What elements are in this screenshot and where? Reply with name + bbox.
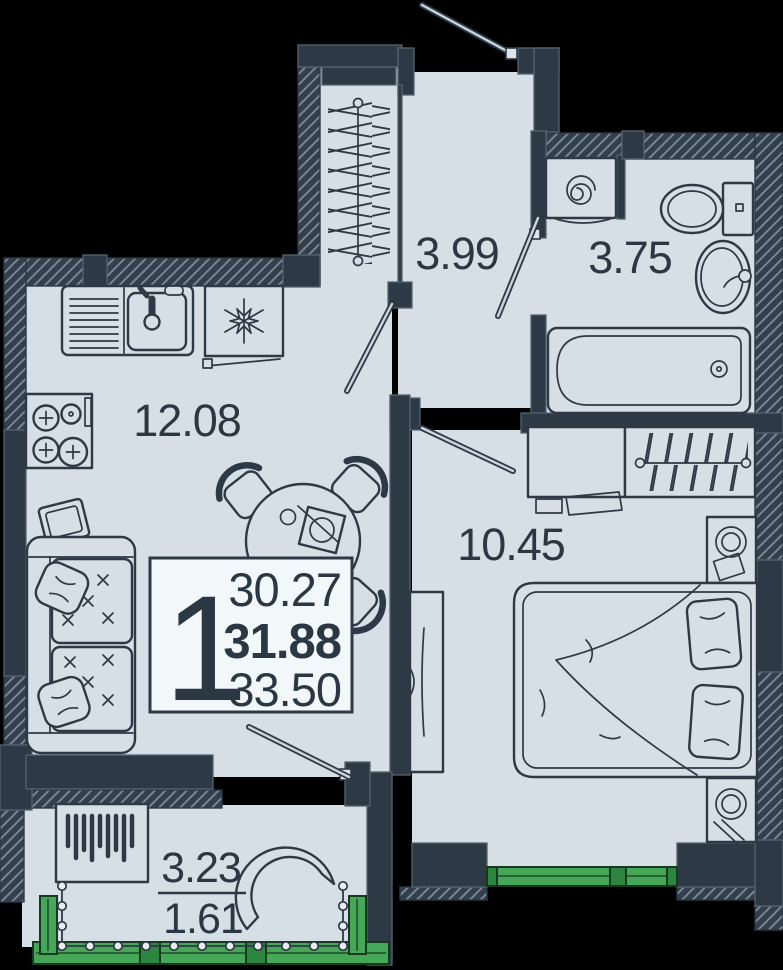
fridge <box>203 286 283 368</box>
floorplan-page: 12.08 3.99 3.75 10.45 3.23 1.61 1 30.27 … <box>0 0 783 970</box>
nightstand <box>707 517 756 583</box>
dresser <box>528 427 625 497</box>
unit-info-box: 1 30.27 31.88 33.50 <box>150 558 352 732</box>
nightstand <box>707 778 756 844</box>
balcony-area-full: 3.23 <box>161 844 241 892</box>
balcony-area-reduced: 1.61 <box>163 895 243 943</box>
balcony-area-fraction: 3.23 1.61 <box>158 844 246 943</box>
double-bed <box>514 583 757 777</box>
kitchen-counter <box>62 286 193 355</box>
bed-pillow <box>689 684 744 759</box>
door-entry <box>422 5 517 59</box>
room-label-bedroom: 10.45 <box>457 519 565 570</box>
hanger-rail-icon <box>638 433 748 491</box>
bedroom-wardrobe <box>625 427 755 497</box>
room-label-kitchen-living: 12.08 <box>133 395 241 446</box>
stove <box>26 394 92 468</box>
balcony-glazing-left <box>40 896 57 954</box>
unit-area-with-summer: 33.50 <box>228 663 341 716</box>
washing-machine <box>546 158 616 223</box>
unit-living-area: 30.27 <box>228 563 341 616</box>
unit-total-area: 31.88 <box>223 615 341 669</box>
room-label-hallway: 3.99 <box>415 228 499 279</box>
tall-closet <box>410 592 443 772</box>
sofa <box>27 537 135 753</box>
bathroom-sink <box>696 241 751 313</box>
bathtub <box>548 328 750 413</box>
bedroom-window <box>487 867 677 886</box>
balcony-glazing-right <box>349 896 366 954</box>
bed-pillow <box>686 598 742 670</box>
drying-rack <box>56 804 148 882</box>
hall-wardrobe <box>328 99 390 266</box>
room-label-bathroom: 3.75 <box>588 232 672 283</box>
kitchen-balcony-sill <box>26 755 213 789</box>
floorplan-canvas: 12.08 3.99 3.75 10.45 3.23 1.61 1 30.27 … <box>0 0 783 970</box>
hanger-rail-icon <box>328 100 390 264</box>
toilet <box>661 183 753 235</box>
